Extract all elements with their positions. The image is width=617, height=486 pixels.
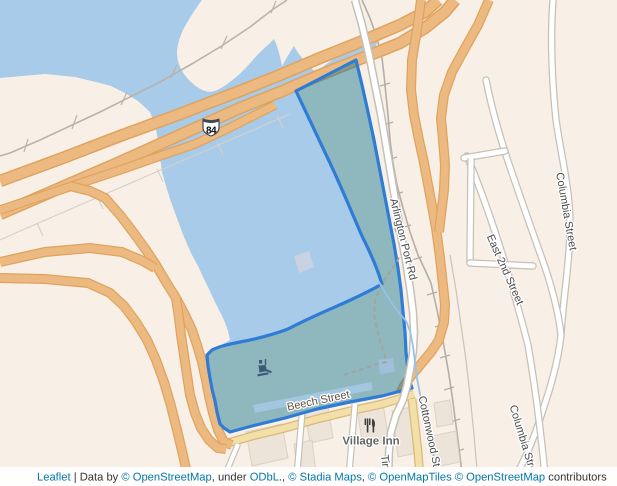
svg-text:84: 84	[206, 125, 217, 136]
svg-text:Village Inn: Village Inn	[342, 436, 399, 448]
svg-text:Leaflet | Data by © OpenStreet: Leaflet | Data by © OpenStreetMap, under…	[37, 472, 607, 484]
